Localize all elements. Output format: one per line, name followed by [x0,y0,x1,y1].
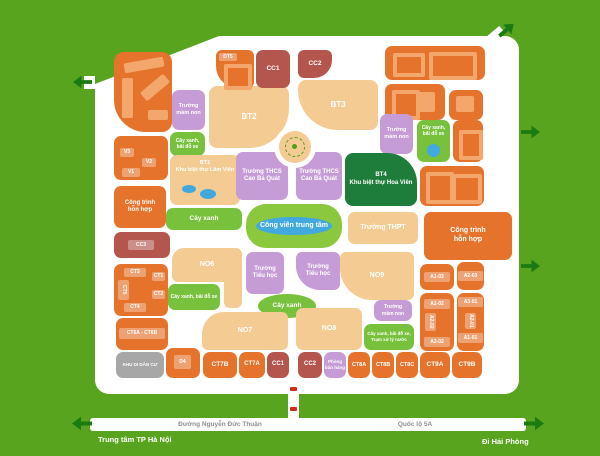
block-label: Trường mầm non [374,300,412,321]
block-label: Cây xanh [166,208,242,230]
block-tag: CC3 [128,240,154,250]
block-tag: V3 [120,148,134,157]
a-west-block: A1-02A2-02A3-02 [420,293,454,351]
block-label: CT9B [452,352,482,378]
block-label: CC2 [298,50,332,78]
block-label: NO7 [202,312,288,350]
destination-haiphong: Đi Hải Phòng [482,437,529,446]
a2-03-block: A2-03 [457,262,484,290]
block-label: CC1 [256,50,290,88]
bt1-lam-vien: BT1 Khu biệt thự Lâm Viên [170,155,240,205]
residential-e2 [420,166,484,206]
no9: NO9 [340,252,414,300]
parking-nw: Cây xanh, bãi đỗ xe [170,132,205,156]
block-label: Cây xanh, bãi đỗ xe [417,120,450,162]
building-shape [456,96,474,112]
cc2-north: CC2 [298,50,332,78]
building-shape [426,172,454,204]
road-connector [288,392,299,419]
no6-ext [224,250,242,308]
residential-nw-v: V3V2V1 [114,136,168,180]
block-tag: CT2 [152,290,165,299]
ct6ab: CT6A - CT6B [116,318,168,350]
building-shape [123,57,164,74]
block-tag: A1-01 [458,333,483,343]
master-plan-map: V3V2V1Công trình hỗn hợpCC3CT3CT1CT5CT2C… [0,0,600,456]
blocks-layer: V3V2V1Công trình hỗn hợpCC3CT3CT1CT5CT2C… [0,0,600,456]
dt5: DT5 [216,50,254,88]
ct7a: CT7A [239,352,265,378]
d4: D4 [166,348,200,378]
building-shape [429,52,477,80]
block-label: NO8 [296,308,362,350]
block-label: Trường THPT [348,212,418,244]
block-label: CT7B [203,352,237,378]
cc2-south: CC2 [298,352,322,378]
cc1-south: CC1 [267,352,289,378]
block-label: CT8B [372,352,394,378]
kindergarten-nw: Trường mầm non [172,90,205,130]
block-tag: A3-01 [458,297,483,307]
block-label: CT7A [239,352,265,378]
ct-cluster: CT3CT1CT5CT2CT4 [114,264,168,316]
block-label: BT4 Khu biệt thự Hoa Viên [345,153,417,206]
roundabout [274,126,316,168]
thpt: Trường THPT [348,212,418,244]
block-tag: A3-02 [424,337,450,347]
block-tag: A1-03 [424,272,450,282]
mixed-use-east: Công trình hỗn hợp [424,212,512,260]
block-label: Công trình hỗn hợp [424,212,512,260]
road-label-quoc-lo-5a: Quốc lộ 5A [355,418,475,431]
parking-ne: Cây xanh, bãi đỗ xe [417,120,450,162]
block-label: Cây xanh, bãi đỗ xe [168,284,220,310]
block-label: Trường mầm non [172,90,205,130]
block-label: NO9 [340,252,414,300]
central-park: Công viên trung tâm [246,204,342,248]
block-label: Trường Tiểu học [246,252,284,294]
cc1-north: CC1 [256,50,290,88]
bt3: BT3 [298,80,378,130]
sales-office: Phòng bán hàng [324,352,346,378]
block-label: Công trình hỗn hợp [114,186,166,228]
residential-ne-1 [385,46,485,80]
building-shape [452,174,482,204]
block-label: Trường mầm non [380,114,413,154]
building-shape [140,74,170,102]
block-tag: A1-02 [424,299,450,309]
block-label: CC1 [267,352,289,378]
block-tag: CT4 [124,303,146,312]
mixed-use-west: Công trình hỗn hợp [114,186,166,228]
destination-hanoi: Trung tâm TP Hà Nội [98,435,172,444]
block-tag: A2-02 [425,313,436,331]
block-label: Cây xanh, bãi đỗ xe [170,132,205,156]
building-shape [148,110,168,120]
block-label: CT9A [420,352,450,378]
no8: NO8 [296,308,362,350]
ct8c: CT8C [396,352,418,378]
a1-03-block: A1-03 [420,264,454,290]
block-tag: CT1 [152,272,165,281]
building-shape [459,130,483,160]
a-east-block: A3-01A2-01A1-01 [457,293,484,351]
block-tag: DT5 [219,53,237,61]
ct8b: CT8B [372,352,394,378]
building-shape [393,53,425,77]
roundabout-center-dot [292,144,297,149]
primary-school-west: Trường Tiểu học [246,252,284,294]
block-tag: D4 [174,355,191,369]
road-label-nguyen-duc-thuan: Đường Nguyễn Đức Thuận [130,418,310,431]
residential-e1 [453,120,483,162]
building-shape [224,64,252,90]
kindergarten-se: Trường mầm non [374,300,412,321]
road-marker-2 [290,407,297,411]
block-label: Cây xanh, bãi đỗ xe, Trạm xử lý nước [364,324,414,350]
ct9a: CT9A [420,352,450,378]
block-tag: V1 [122,168,140,177]
block-label: Trường Tiểu học [296,252,340,290]
ct8a: CT8A [348,352,370,378]
green-strip-west: Cây xanh [166,208,242,230]
residential-nw [114,52,172,132]
residential-ne-3 [449,90,483,120]
parking-se: Cây xanh, bãi đỗ xe, Trạm xử lý nước [364,324,414,350]
kindergarten-ne: Trường mầm non [380,114,413,154]
block-label: BT3 [298,80,378,130]
building-shape [122,78,133,118]
cc3: CC3 [114,232,170,258]
road-marker-1 [290,387,297,391]
parking-center: Cây xanh, bãi đỗ xe [168,284,220,310]
block-tag: A2-03 [458,271,483,281]
resettlement-area: KHU DI DÂN CƯ [116,352,164,378]
no7: NO7 [202,312,288,350]
building-shape [418,92,435,112]
block-label: Phòng bán hàng [324,352,346,378]
block-tag: A2-01 [465,313,476,329]
block-tag: V2 [142,158,156,167]
ct7b: CT7B [203,352,237,378]
block-label: KHU DI DÂN CƯ [116,352,164,378]
bt4-hoa-vien: BT4 Khu biệt thự Hoa Viên [345,153,417,206]
block-label: BT1 Khu biệt thự Lâm Viên [170,155,240,205]
ct9b: CT9B [452,352,482,378]
block-label: CC2 [298,352,322,378]
primary-school-east: Trường Tiểu học [296,252,340,290]
block-label: CT8A [348,352,370,378]
block-label: CT8C [396,352,418,378]
block-tag: CT6A - CT6B [119,328,165,339]
block-tag: CT5 [118,280,129,300]
block-label: Công viên trung tâm [246,204,342,248]
block-tag: CT3 [124,268,146,277]
